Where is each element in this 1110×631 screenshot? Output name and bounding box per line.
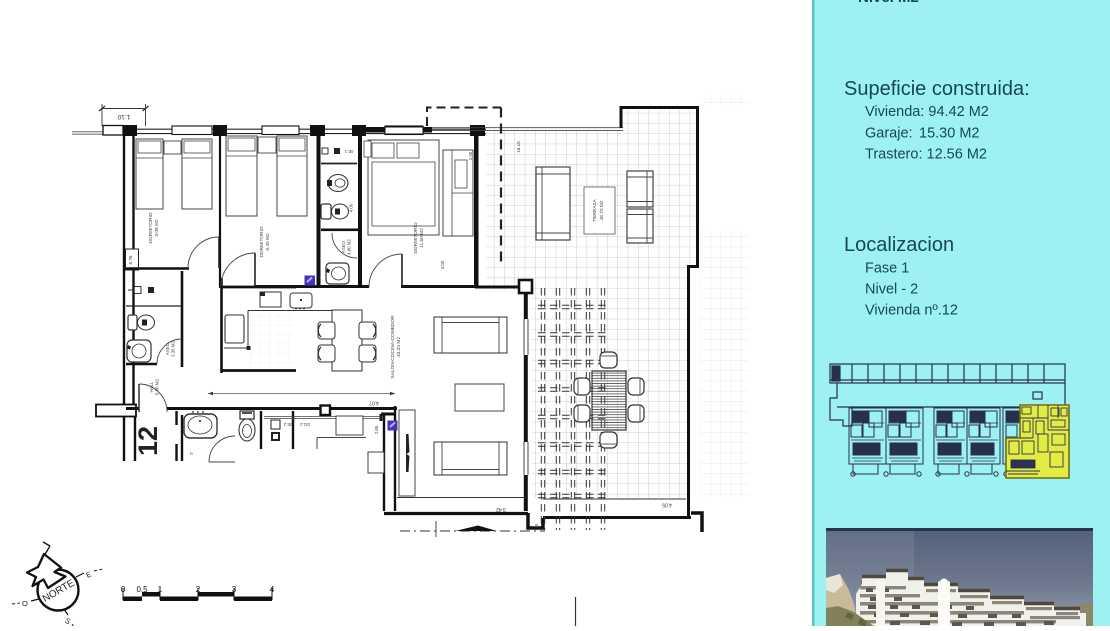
svg-text:2.85: 2.85 xyxy=(374,425,379,434)
svg-text:12: 12 xyxy=(133,426,163,456)
svg-text:0E.1: 0E.1 xyxy=(344,149,353,154)
svg-text:Fase 1: Fase 1 xyxy=(865,261,909,277)
svg-text:ASEO: ASEO xyxy=(165,342,170,355)
svg-text:ASEO: ASEO xyxy=(341,240,346,253)
svg-text:Trastero: 12.56 M2: Trastero: 12.56 M2 xyxy=(865,147,987,163)
svg-text:R: R xyxy=(190,451,193,456)
svg-text:9.40 M2: 9.40 M2 xyxy=(265,233,271,251)
svg-text:4.07: 4.07 xyxy=(369,400,379,406)
svg-text:4.05: 4.05 xyxy=(662,502,672,508)
svg-text:Nivel M2: Nivel M2 xyxy=(858,0,919,6)
svg-text:DORMITORIO: DORMITORIO xyxy=(259,226,265,257)
svg-text:5.76: 5.76 xyxy=(128,255,133,264)
svg-text:Supeficie construida:: Supeficie construida: xyxy=(844,78,1030,100)
svg-text:Garaje:: Garaje: xyxy=(865,126,913,142)
svg-text:Vivienda nº.12: Vivienda nº.12 xyxy=(865,303,958,319)
svg-text:DORMITORIO: DORMITORIO xyxy=(148,212,154,243)
svg-text:4.80 M2: 4.80 M2 xyxy=(347,239,352,255)
svg-text:15.30 M2: 15.30 M2 xyxy=(919,126,979,142)
svg-text:16.15: 16.15 xyxy=(516,141,521,153)
svg-text:1.10: 1.10 xyxy=(117,113,130,120)
svg-text:SALON-COCINA-COMEDOR: SALON-COCINA-COMEDOR xyxy=(390,315,396,379)
svg-text:3.35 M2: 3.35 M2 xyxy=(171,341,176,357)
svg-text:TERRAZA: TERRAZA xyxy=(592,199,598,222)
svg-text:33.20 M2: 33.20 M2 xyxy=(396,337,402,357)
svg-text:O: O xyxy=(22,599,28,608)
svg-text:DG.2: DG.2 xyxy=(299,422,309,427)
svg-text:48.70 M2: 48.70 M2 xyxy=(599,200,605,220)
svg-text:35: 35 xyxy=(534,523,539,528)
svg-text:2.90: 2.90 xyxy=(468,151,473,160)
svg-text:DORMITORIO: DORMITORIO xyxy=(413,222,419,253)
svg-text:3.42: 3.42 xyxy=(496,506,506,512)
svg-text:Vivienda: 94.42 M2: Vivienda: 94.42 M2 xyxy=(865,104,989,120)
svg-text:4.00: 4.00 xyxy=(440,260,445,269)
svg-text:0E.2: 0E.2 xyxy=(283,422,292,427)
svg-text:Nivel - 2: Nivel - 2 xyxy=(865,282,918,298)
svg-text:Localizacion: Localizacion xyxy=(844,234,954,256)
svg-text:3.08 M2: 3.08 M2 xyxy=(154,219,160,237)
svg-text:11.60 M2: 11.60 M2 xyxy=(419,228,425,248)
svg-text:4.00: 4.00 xyxy=(349,203,354,212)
